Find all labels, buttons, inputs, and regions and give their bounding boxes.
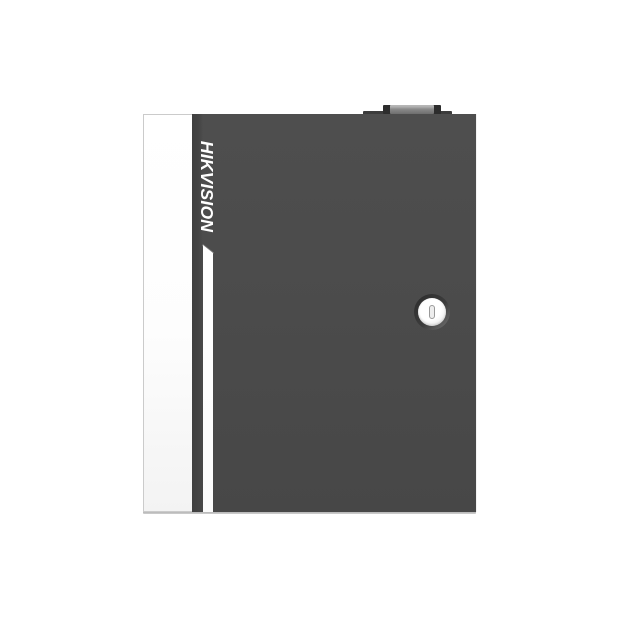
keyhole-icon — [429, 305, 435, 319]
enclosure-side-panel — [143, 114, 192, 512]
door-accent-stripe — [203, 245, 213, 512]
top-latch — [390, 105, 434, 114]
top-latch-cap-right — [433, 105, 441, 114]
product-photo: HIKVISION — [0, 0, 620, 620]
brand-logo-text: HIKVISION — [197, 140, 216, 233]
brand-wordmark: HIKVISION — [196, 141, 217, 232]
